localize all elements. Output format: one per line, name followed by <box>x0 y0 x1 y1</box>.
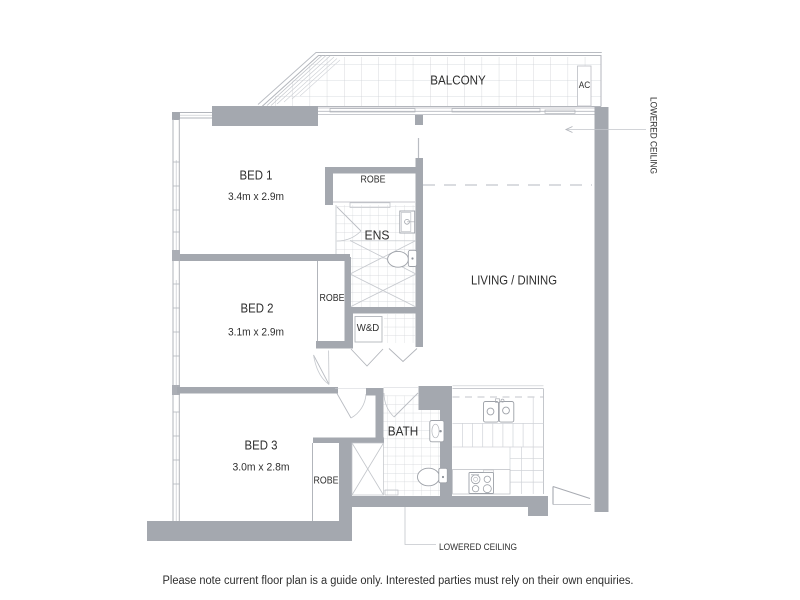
svg-text:LOWERED CEILING: LOWERED CEILING <box>648 97 659 174</box>
svg-text:LIVING / DINING: LIVING / DINING <box>471 274 557 288</box>
svg-text:BED 3: BED 3 <box>245 439 278 453</box>
svg-text:3.0m x 2.8m: 3.0m x 2.8m <box>233 462 290 474</box>
svg-text:ENS: ENS <box>365 229 390 243</box>
svg-text:BED 2: BED 2 <box>241 302 274 316</box>
svg-text:3.4m x 2.9m: 3.4m x 2.9m <box>228 191 284 203</box>
svg-text:3.1m x 2.9m: 3.1m x 2.9m <box>228 327 284 339</box>
svg-text:ROBE: ROBE <box>314 476 339 487</box>
svg-text:AC: AC <box>579 80 591 90</box>
svg-text:ROBE: ROBE <box>361 175 386 186</box>
svg-text:BALCONY: BALCONY <box>430 74 486 88</box>
svg-text:LOWERED CEILING: LOWERED CEILING <box>439 542 517 553</box>
svg-text:ROBE: ROBE <box>320 293 345 304</box>
svg-text:Please note current floor plan: Please note current floor plan is a guid… <box>163 575 634 587</box>
svg-text:BATH: BATH <box>388 425 419 439</box>
svg-text:BED 1: BED 1 <box>240 169 273 183</box>
svg-text:W&D: W&D <box>357 323 380 334</box>
